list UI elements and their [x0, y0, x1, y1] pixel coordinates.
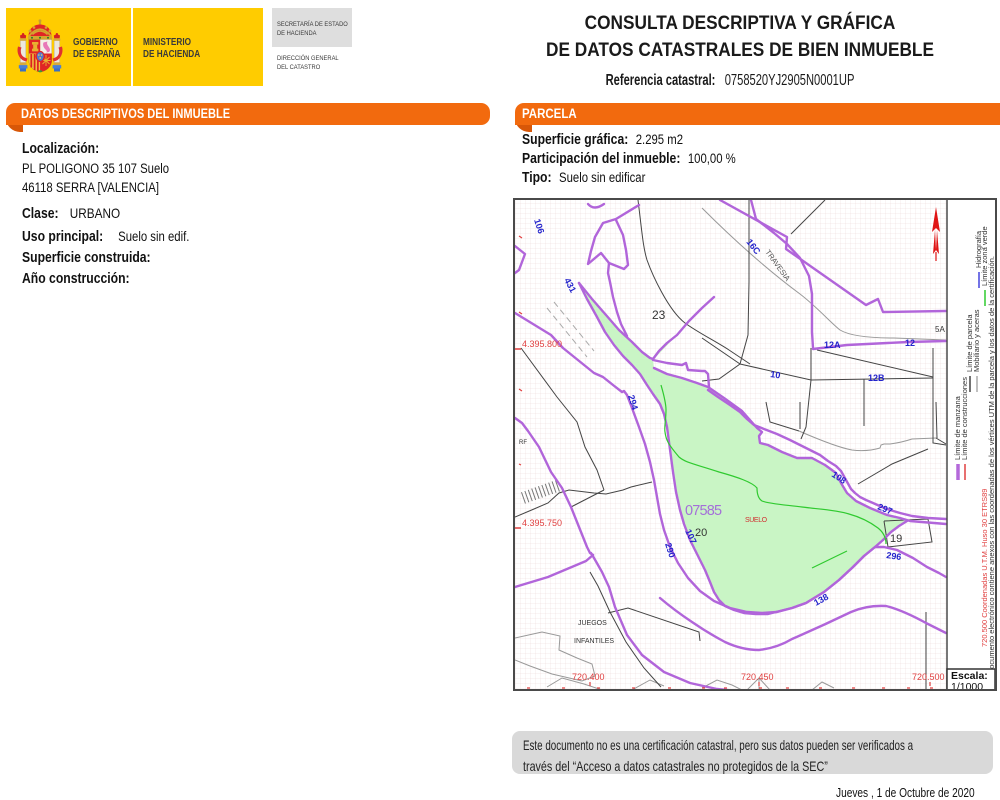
svg-text:12B: 12B — [868, 373, 885, 383]
svg-text:TRAVESIA: TRAVESIA — [763, 248, 792, 283]
svg-text:Este documento electrónico con: Este documento electrónico contiene anex… — [987, 256, 995, 689]
svg-text:296: 296 — [886, 550, 902, 562]
svg-text:16C: 16C — [744, 237, 762, 257]
svg-text:10: 10 — [770, 369, 781, 380]
svg-text:4.395.750: 4.395.750 — [522, 518, 562, 528]
svg-text:23: 23 — [652, 308, 666, 322]
svg-text:720.500: 720.500 — [912, 672, 945, 682]
svg-text:12A: 12A — [824, 340, 841, 350]
svg-text:SUELO: SUELO — [745, 517, 768, 524]
svg-text:20: 20 — [695, 527, 707, 539]
svg-text:1/1000: 1/1000 — [951, 681, 983, 689]
svg-text:Límite de construcciones: Límite de construcciones — [960, 377, 969, 460]
svg-text:290: 290 — [663, 542, 677, 559]
svg-text:RF: RF — [519, 440, 527, 446]
svg-text:106: 106 — [532, 218, 546, 235]
svg-text:INFANTILES: INFANTILES — [574, 638, 614, 645]
svg-text:5A: 5A — [935, 325, 945, 334]
svg-text:431: 431 — [562, 276, 578, 294]
svg-text:294: 294 — [626, 394, 640, 411]
svg-text:JUEGOS: JUEGOS — [578, 620, 607, 627]
svg-text:720.450: 720.450 — [741, 672, 774, 682]
svg-text:Mobiliario y aceras: Mobiliario y aceras — [972, 309, 981, 372]
svg-text:19: 19 — [890, 533, 902, 545]
svg-text:720.400: 720.400 — [572, 672, 605, 682]
svg-text:12: 12 — [905, 338, 915, 348]
svg-text:07585: 07585 — [685, 503, 722, 519]
svg-text:4.395.800: 4.395.800 — [522, 339, 562, 349]
